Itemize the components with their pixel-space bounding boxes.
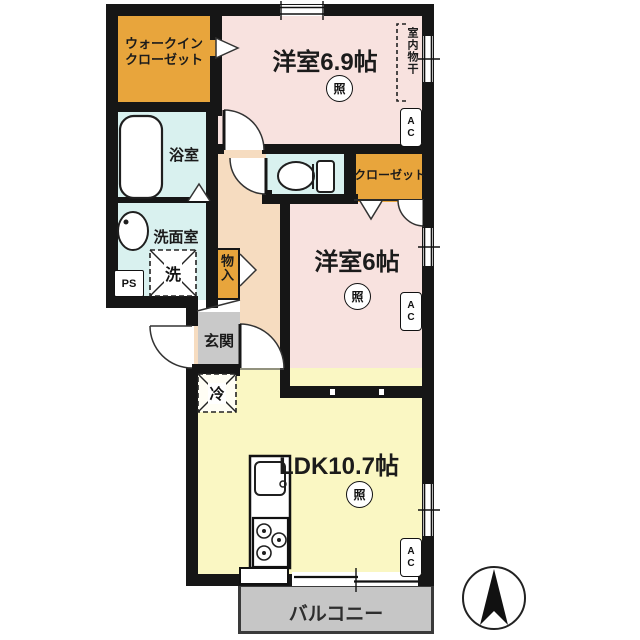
compass bbox=[463, 567, 525, 629]
ldk-label: LDK10.7帖 bbox=[250, 446, 428, 481]
floorplan: ウォークイン クローゼット 洋室6.9帖 洋室6帖 LDK10.7帖 バルコニー… bbox=[0, 0, 640, 640]
entrance-step-line bbox=[197, 300, 240, 311]
wic-label: ウォークイン クローゼット bbox=[114, 36, 214, 68]
bath-label: 浴室 bbox=[158, 144, 210, 165]
window-ldk bbox=[418, 484, 440, 536]
bathtub bbox=[120, 116, 162, 198]
door-ldk bbox=[240, 324, 284, 369]
light-symbol-bedroom1: 照 bbox=[326, 75, 353, 102]
opening-storage bbox=[240, 254, 256, 286]
door-closet bbox=[354, 200, 424, 226]
balcony-label: バルコニー bbox=[238, 599, 434, 626]
door-toilet bbox=[230, 158, 266, 194]
bedroom1-label: 洋室6.9帖 bbox=[222, 42, 428, 77]
floorplan-linework bbox=[0, 0, 640, 640]
ac-unit-bedroom1: AC bbox=[400, 108, 422, 147]
washer-label: 洗 bbox=[150, 250, 196, 296]
toilet bbox=[278, 161, 334, 192]
entrance-label: 玄関 bbox=[198, 330, 240, 351]
fridge-label: 冷 bbox=[198, 374, 236, 412]
wic-label-line2: クローゼット bbox=[114, 52, 214, 68]
light-symbol-ldk: 照 bbox=[346, 481, 373, 508]
storage-label: 物入 bbox=[217, 254, 236, 282]
bedroom2-label: 洋室6帖 bbox=[288, 242, 426, 277]
pipe-space: PS bbox=[114, 270, 144, 297]
door-entrance bbox=[150, 326, 192, 368]
indoor-drying-label: 室内物干 bbox=[404, 27, 420, 75]
opening-bath bbox=[188, 184, 210, 201]
ac-unit-ldk: AC bbox=[400, 538, 422, 577]
washroom-label: 洗面室 bbox=[138, 226, 214, 247]
door-bedroom1 bbox=[224, 110, 264, 150]
light-symbol-bedroom2: 照 bbox=[344, 283, 371, 310]
pipe-space-label: PS bbox=[122, 278, 137, 290]
ac-unit-bedroom2: AC bbox=[400, 292, 422, 331]
kitchen-step bbox=[240, 568, 288, 584]
wic-label-line1: ウォークイン bbox=[114, 36, 214, 52]
window-top bbox=[280, 1, 324, 20]
closet-label: クローゼット bbox=[352, 166, 428, 183]
